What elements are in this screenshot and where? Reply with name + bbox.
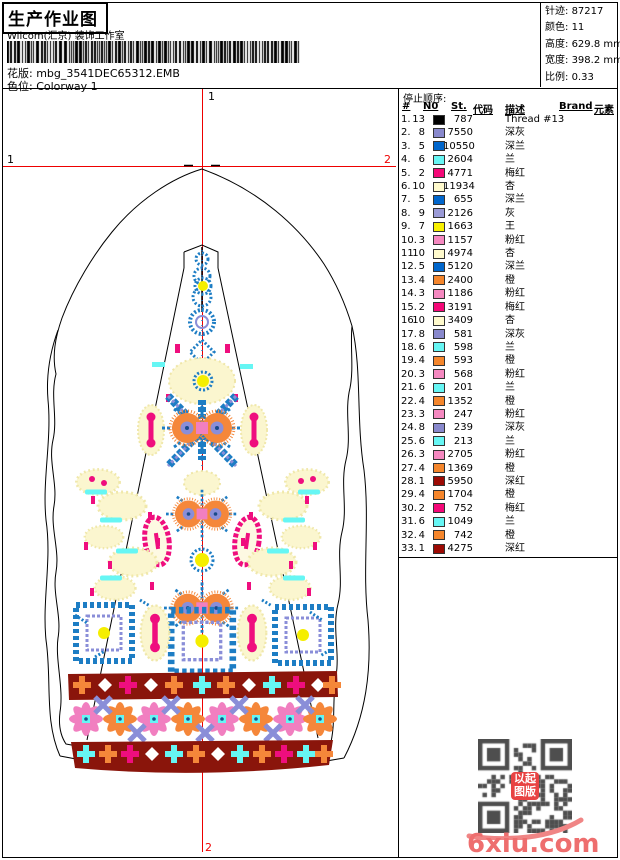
- cell-stitches: 787: [443, 113, 473, 126]
- col-brand: Brand: [559, 101, 593, 112]
- table-row: 25.6213兰: [399, 435, 618, 448]
- cell-description: 粉红: [505, 287, 525, 300]
- table-row: 11.104974杏: [399, 247, 618, 260]
- cell-needle: 2: [409, 502, 425, 515]
- cell-stitches: 1369: [443, 462, 473, 475]
- thread-color-chip: [433, 168, 445, 178]
- cell-needle: 7: [409, 220, 425, 233]
- table-row: 24.8239深灰: [399, 421, 618, 434]
- cell-description: 杏: [505, 247, 515, 260]
- cell-stitches: 2705: [443, 448, 473, 461]
- cell-description: 橙: [505, 462, 515, 475]
- col-needle: N0: [423, 101, 438, 112]
- cell-stitches: 742: [443, 529, 473, 542]
- cell-description: 深兰: [505, 193, 525, 206]
- cell-stitches: 4275: [443, 542, 473, 555]
- cell-needle: 4: [409, 488, 425, 501]
- production-worksheet: 生产作业图 Wilcom(汇京) 装饰工作室 花版: mbg_3541DEC65…: [0, 0, 620, 860]
- thread-color-chip: [433, 275, 445, 285]
- barcode: [7, 41, 302, 63]
- thread-color-chip: [433, 396, 445, 406]
- table-row: 16.103409杏: [399, 314, 618, 327]
- table-row: 14.31186粉红: [399, 287, 618, 300]
- thread-color-chip: [433, 476, 445, 486]
- cell-description: 橙: [505, 274, 515, 287]
- cell-needle: 5: [409, 140, 425, 153]
- marker-bottom: 2: [205, 841, 212, 854]
- thread-color-chip: [433, 115, 445, 125]
- cell-stitches: 2126: [443, 207, 473, 220]
- thread-color-chip: [433, 222, 445, 232]
- cell-description: 粉红: [505, 408, 525, 421]
- thread-color-chip: [433, 409, 445, 419]
- stat-height: 高度: 629.8 mm: [545, 37, 618, 53]
- thread-color-chip: [433, 195, 445, 205]
- cell-stitches: 239: [443, 421, 473, 434]
- cell-description: 杏: [505, 180, 515, 193]
- table-row: 12.55120深兰: [399, 260, 618, 273]
- cell-stitches: 1186: [443, 287, 473, 300]
- table-row: 21.6201兰: [399, 381, 618, 394]
- table-row: 29.41704橙: [399, 488, 618, 501]
- stat-stitches: 针迹: 87217: [545, 4, 618, 20]
- table-row: 10.31157粉红: [399, 234, 618, 247]
- cell-stitches: 247: [443, 408, 473, 421]
- table-row: 23.3247粉红: [399, 408, 618, 421]
- design-stats-box: 针迹: 87217 颜色: 11 高度: 629.8 mm 宽度: 398.2 …: [540, 2, 618, 87]
- stop-rows: 1.13787Thread #132.87550深灰3.510550深兰4.62…: [399, 113, 618, 555]
- table-row: 18.6598兰: [399, 341, 618, 354]
- design-drawing: 1 1 2 2: [2, 88, 398, 857]
- thread-color-chip: [433, 423, 445, 433]
- thread-color-chip: [433, 517, 445, 527]
- header: 生产作业图 Wilcom(汇京) 装饰工作室 花版: mbg_3541DEC65…: [2, 2, 618, 89]
- cell-description: 梅红: [505, 167, 525, 180]
- table-row: 20.3568粉红: [399, 368, 618, 381]
- cell-description: 粉红: [505, 448, 525, 461]
- cell-needle: 8: [409, 328, 425, 341]
- cell-description: 杏: [505, 314, 515, 327]
- stop-sequence-panel: 停止顺序: # N0 St. 代码 描述 Brand 元素 1.13787Thr…: [399, 88, 618, 858]
- cell-needle: 5: [409, 260, 425, 273]
- cell-needle: 10: [409, 180, 425, 193]
- cell-description: 梅红: [505, 502, 525, 515]
- cell-description: 深红: [505, 475, 525, 488]
- cell-description: 兰: [505, 381, 515, 394]
- cell-needle: 10: [409, 247, 425, 260]
- cell-description: 粉红: [505, 234, 525, 247]
- watermark-site: 6xiu.com: [467, 829, 585, 859]
- table-row: 27.41369橙: [399, 462, 618, 475]
- cell-stitches: 7550: [443, 126, 473, 139]
- cell-needle: 6: [409, 341, 425, 354]
- marker-right: 2: [384, 153, 391, 166]
- thread-color-chip: [433, 544, 445, 554]
- cell-needle: 4: [409, 462, 425, 475]
- cell-stitches: 3191: [443, 301, 473, 314]
- cell-stitches: 4771: [443, 167, 473, 180]
- table-row: 28.15950深红: [399, 475, 618, 488]
- cell-stitches: 581: [443, 328, 473, 341]
- cell-stitches: 201: [443, 381, 473, 394]
- cell-stitches: 1704: [443, 488, 473, 501]
- cell-description: 粉红: [505, 368, 525, 381]
- table-row: 33.14275深红: [399, 542, 618, 555]
- table-row: 3.510550深兰: [399, 140, 618, 153]
- cell-stitches: 2400: [443, 274, 473, 287]
- cell-needle: 6: [409, 153, 425, 166]
- cell-needle: 3: [409, 448, 425, 461]
- cell-needle: 6: [409, 515, 425, 528]
- table-row: 8.92126灰: [399, 207, 618, 220]
- thread-color-chip: [433, 383, 445, 393]
- table-row: 31.61049兰: [399, 515, 618, 528]
- thread-color-chip: [433, 249, 445, 259]
- thread-color-chip: [433, 463, 445, 473]
- cell-stitches: 3409: [443, 314, 473, 327]
- cell-description: 兰: [505, 435, 515, 448]
- table-row: 1.13787Thread #13: [399, 113, 618, 126]
- cell-needle: 2: [409, 167, 425, 180]
- table-row: 5.24771梅红: [399, 167, 618, 180]
- cell-stitches: 213: [443, 435, 473, 448]
- cell-stitches: 1352: [443, 395, 473, 408]
- cell-description: 王: [505, 220, 515, 233]
- table-row: 19.4593橙: [399, 354, 618, 367]
- thread-color-chip: [433, 316, 445, 326]
- table-row: 6.1011934杏: [399, 180, 618, 193]
- design-canvas: 1 1 2 2: [2, 88, 399, 858]
- thread-color-chip: [433, 369, 445, 379]
- cell-stitches: 655: [443, 193, 473, 206]
- thread-color-chip: [433, 436, 445, 446]
- cell-description: 深灰: [505, 126, 525, 139]
- cell-description: 橙: [505, 395, 515, 408]
- watermark-seal: 以起 图版: [511, 772, 539, 800]
- col-stitches: St.: [451, 101, 467, 112]
- cell-stitches: 4974: [443, 247, 473, 260]
- thread-color-chip: [433, 342, 445, 352]
- table-bottom-line: [399, 557, 618, 558]
- thread-color-chip: [433, 128, 445, 138]
- cell-needle: 3: [409, 287, 425, 300]
- cell-stitches: 1157: [443, 234, 473, 247]
- cell-needle: 10: [409, 314, 425, 327]
- stat-width: 宽度: 398.2 mm: [545, 53, 618, 69]
- cell-description: 橙: [505, 488, 515, 501]
- thread-color-chip: [433, 235, 445, 245]
- table-row: 4.62604兰: [399, 153, 618, 166]
- table-row: 32.4742橙: [399, 529, 618, 542]
- table-row: 2.87550深灰: [399, 126, 618, 139]
- cell-needle: 3: [409, 408, 425, 421]
- cell-description: 深兰: [505, 260, 525, 273]
- cell-stitches: 598: [443, 341, 473, 354]
- cell-needle: 1: [409, 542, 425, 555]
- cell-stitches: 10550: [443, 140, 473, 153]
- cell-needle: 4: [409, 529, 425, 542]
- cell-description: 深红: [505, 542, 525, 555]
- cell-stitches: 5950: [443, 475, 473, 488]
- seal-line-2: 图版: [511, 785, 539, 798]
- cell-stitches: 568: [443, 368, 473, 381]
- table-row: 13.42400橙: [399, 274, 618, 287]
- cell-needle: 8: [409, 421, 425, 434]
- stat-colors: 颜色: 11: [545, 20, 618, 36]
- cell-stitches: 593: [443, 354, 473, 367]
- cell-needle: 9: [409, 207, 425, 220]
- thread-color-chip: [433, 141, 445, 151]
- cell-description: 橙: [505, 354, 515, 367]
- cell-needle: 6: [409, 381, 425, 394]
- cell-needle: 5: [409, 193, 425, 206]
- cell-stitches: 2604: [443, 153, 473, 166]
- cell-description: 橙: [505, 529, 515, 542]
- cell-description: 兰: [505, 515, 515, 528]
- thread-color-chip: [433, 302, 445, 312]
- cell-stitches: 11934: [443, 180, 473, 193]
- thread-color-chip: [433, 450, 445, 460]
- table-row: 22.41352橙: [399, 395, 618, 408]
- thread-color-chip: [433, 155, 445, 165]
- col-number: #: [402, 101, 410, 112]
- thread-color-chip: [433, 182, 445, 192]
- cell-description: 深兰: [505, 140, 525, 153]
- seal-line-1: 以起: [511, 772, 539, 785]
- thread-color-chip: [433, 356, 445, 366]
- marker-left: 1: [7, 153, 14, 166]
- cell-stitches: 5120: [443, 260, 473, 273]
- table-row: 17.8581深灰: [399, 328, 618, 341]
- cell-description: Thread #13: [505, 113, 564, 126]
- cell-description: 兰: [505, 153, 515, 166]
- thread-color-chip: [433, 208, 445, 218]
- cell-description: 深灰: [505, 421, 525, 434]
- cell-needle: 1: [409, 475, 425, 488]
- marker-top: 1: [208, 90, 215, 103]
- cell-description: 兰: [505, 341, 515, 354]
- cell-needle: 8: [409, 126, 425, 139]
- cell-needle: 3: [409, 368, 425, 381]
- thread-color-chip: [433, 262, 445, 272]
- thread-color-chip: [433, 289, 445, 299]
- cell-description: 灰: [505, 207, 515, 220]
- studio-name: Wilcom(汇京) 装饰工作室: [7, 27, 125, 42]
- table-row: 9.71663王: [399, 220, 618, 233]
- cell-description: 梅红: [505, 301, 525, 314]
- cell-needle: 4: [409, 395, 425, 408]
- table-row: 15.23191梅红: [399, 301, 618, 314]
- cell-needle: 4: [409, 354, 425, 367]
- cell-description: 深灰: [505, 328, 525, 341]
- cell-stitches: 1049: [443, 515, 473, 528]
- cell-needle: 6: [409, 435, 425, 448]
- cell-needle: 13: [409, 113, 425, 126]
- cell-needle: 3: [409, 234, 425, 247]
- thread-color-chip: [433, 329, 445, 339]
- thread-color-chip: [433, 490, 445, 500]
- cell-stitches: 1663: [443, 220, 473, 233]
- thread-color-chip: [433, 530, 445, 540]
- table-row: 26.32705粉红: [399, 448, 618, 461]
- cell-needle: 2: [409, 301, 425, 314]
- table-row: 30.2752梅红: [399, 502, 618, 515]
- stat-scale: 比例: 0.33: [545, 70, 618, 86]
- thread-color-chip: [433, 503, 445, 513]
- embroidery-design: [68, 250, 341, 773]
- table-row: 7.5655深兰: [399, 193, 618, 206]
- cell-needle: 4: [409, 274, 425, 287]
- cell-stitches: 752: [443, 502, 473, 515]
